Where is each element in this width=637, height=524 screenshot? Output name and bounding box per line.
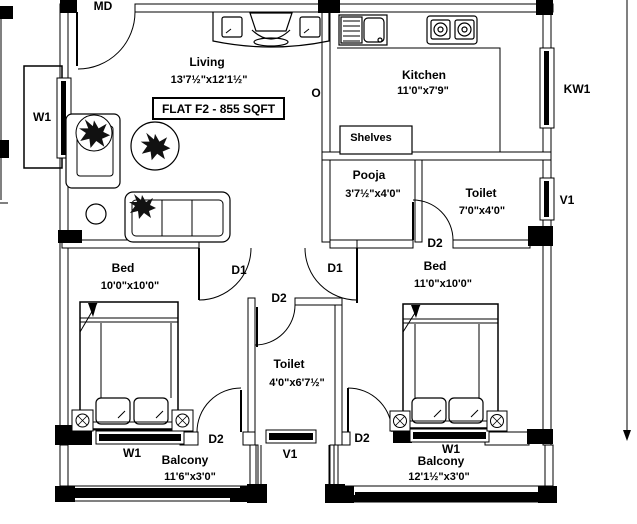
label-window-balcony-left: W1 [123, 447, 141, 460]
label-toilet-common-size: 4'0"x6'7½" [269, 377, 324, 390]
label-door-d2-balcony-right: D2 [354, 432, 369, 445]
floor-plan-drawing [0, 0, 637, 524]
flat-title: FLAT F2 - 855 SQFT [162, 102, 275, 116]
label-ventilator-bottom: V1 [283, 448, 298, 461]
floor-plan: MD W1 Living 13'7½"x12'1½" FLAT F2 - 855… [0, 0, 637, 524]
wall-left [60, 4, 68, 445]
label-toilet-common-name: Toilet [273, 358, 304, 371]
label-bed-right-size: 11'0"x10'0" [414, 278, 472, 291]
label-door-d2-balcony-left: D2 [208, 433, 223, 446]
wall-bedright-top-b [453, 240, 530, 248]
label-kitchen-name: Kitchen [402, 69, 446, 82]
flat-title-box: FLAT F2 - 855 SQFT [152, 97, 285, 120]
label-pooja-size: 3'7½"x4'0" [345, 188, 400, 201]
coffee-table-icon [131, 122, 179, 170]
label-toilet-attached-size: 7'0"x4'0" [459, 205, 505, 218]
arrow-down-icon [623, 430, 631, 441]
wall-bedright-bottom-a [342, 432, 350, 445]
label-living-name: Living [189, 56, 224, 69]
label-bed-right-name: Bed [424, 260, 447, 273]
dimension-line [623, 0, 631, 441]
label-bed-left-size: 10'0"x10'0" [101, 280, 160, 293]
label-balcony-right-size: 12'1½"x3'0" [408, 471, 470, 484]
label-balcony-left-size: 11'6"x3'0" [164, 471, 216, 484]
label-opening: O [311, 87, 320, 100]
wall-bedright-top-a [357, 240, 413, 248]
label-pooja-name: Pooja [353, 169, 386, 182]
wall-pooja-left [322, 160, 330, 242]
label-door-d2-toilet: D2 [427, 237, 442, 250]
label-kitchen-window: KW1 [564, 83, 591, 96]
wall-bedright-bottom-b [485, 432, 529, 445]
label-balcony-left-name: Balcony [162, 454, 209, 467]
bed-left-icon [72, 302, 193, 431]
wall-toilet-common-top [295, 298, 342, 305]
label-balcony-right-name: Balcony [418, 455, 465, 468]
label-shelves: Shelves [350, 132, 392, 145]
stove-icon [427, 16, 477, 44]
label-toilet-attached-name: Toilet [465, 187, 496, 200]
door-d2-common-arc [255, 305, 295, 345]
door-md-arc [78, 12, 135, 69]
label-door-d2-common: D2 [271, 292, 286, 305]
label-door-d1-left: D1 [231, 264, 246, 277]
armchair-icon [66, 114, 120, 188]
wall-bedleft-bottom-b [243, 432, 255, 445]
label-kitchen-size: 11'0"x7'9" [397, 85, 449, 98]
wall-toilet-common-left [248, 298, 255, 445]
wall-toilet-common-right [335, 298, 342, 445]
bed-right-icon [390, 304, 507, 431]
door-d2-balconyleft-arc [197, 388, 241, 432]
label-door-d1-right: D1 [327, 262, 342, 275]
tv-unit-icon [213, 12, 329, 47]
door-d2-balconyright-arc [348, 388, 392, 432]
label-main-door: MD [94, 0, 113, 13]
sofa-icon [125, 192, 230, 242]
wall-top [135, 4, 553, 12]
stool-icon [86, 204, 106, 224]
label-window-w1-left: W1 [33, 111, 51, 124]
label-bed-left-name: Bed [112, 262, 135, 275]
wall-pooja-bottom [330, 240, 360, 248]
sink-icon [339, 15, 387, 45]
label-ventilator-right: V1 [560, 194, 575, 207]
label-living-size: 13'7½"x12'1½" [171, 74, 248, 87]
